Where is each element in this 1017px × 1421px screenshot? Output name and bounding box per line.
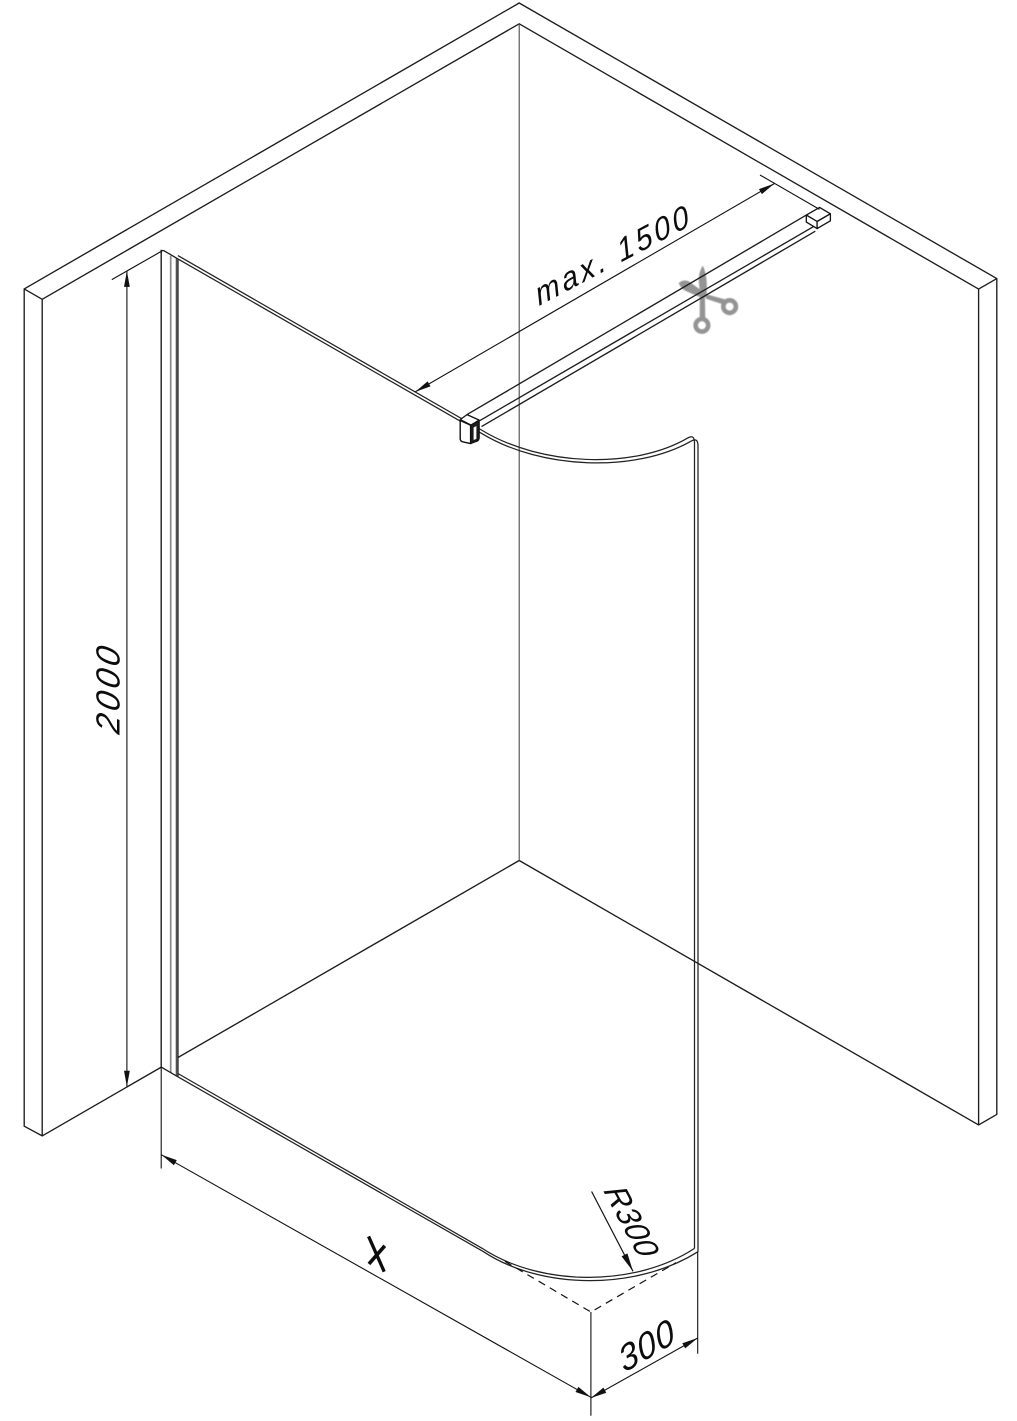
svg-text:2000: 2000	[91, 639, 128, 738]
svg-text:300: 300	[613, 1310, 680, 1381]
